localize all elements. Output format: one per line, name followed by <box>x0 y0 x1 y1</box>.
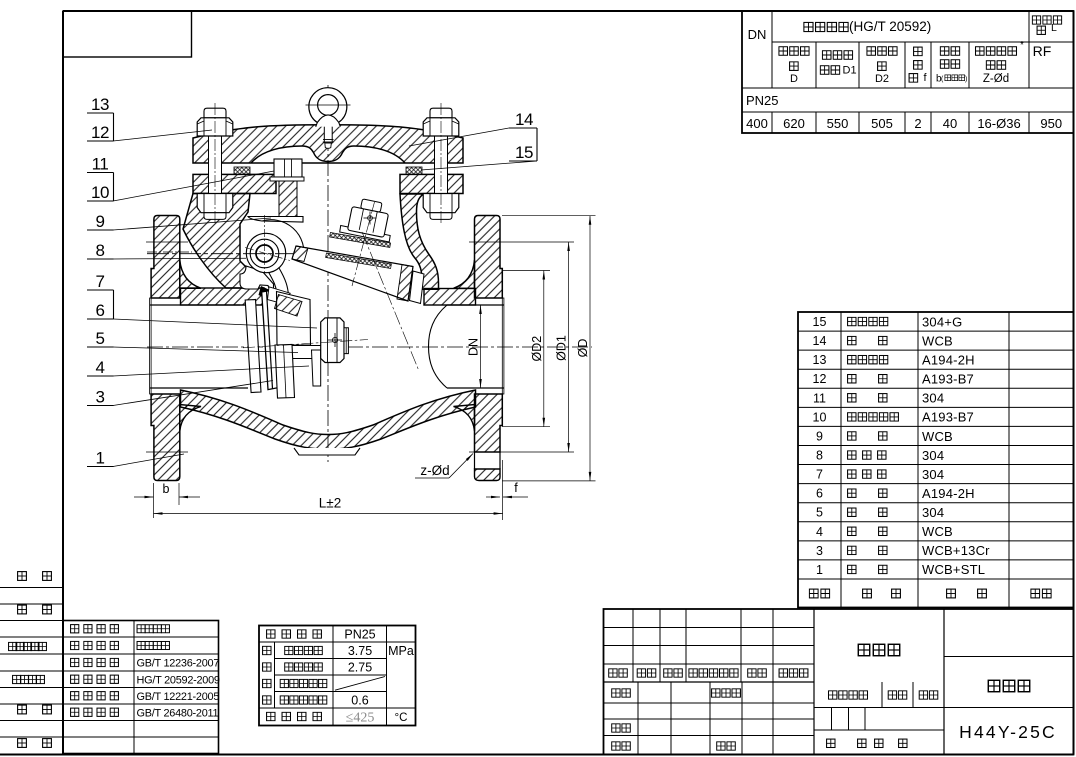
svg-text:A193-B7: A193-B7 <box>922 372 974 387</box>
svg-text:40: 40 <box>943 116 957 131</box>
svg-text:f: f <box>514 481 518 495</box>
svg-text:DN: DN <box>467 338 481 356</box>
svg-text:9: 9 <box>816 429 823 443</box>
svg-text:A193-B7: A193-B7 <box>922 410 974 425</box>
svg-text:3.75: 3.75 <box>348 644 372 658</box>
svg-text:7: 7 <box>96 272 105 291</box>
svg-text:304: 304 <box>922 467 944 482</box>
svg-text:HG/T 20592-2009: HG/T 20592-2009 <box>137 674 220 686</box>
svg-text:304: 304 <box>922 391 944 406</box>
svg-text:L: L <box>1051 22 1057 34</box>
svg-text:304: 304 <box>922 505 944 520</box>
svg-text:D2: D2 <box>875 73 889 85</box>
svg-text:11: 11 <box>92 154 109 173</box>
svg-text:): ) <box>965 76 967 83</box>
svg-text:14: 14 <box>813 334 827 348</box>
svg-text:304+G: 304+G <box>922 314 962 329</box>
svg-text:(HG/T 20592): (HG/T 20592) <box>849 19 931 34</box>
svg-text:1: 1 <box>816 563 823 577</box>
svg-text:H44Y-25C: H44Y-25C <box>959 722 1057 742</box>
svg-text:3: 3 <box>96 387 105 406</box>
svg-text:400: 400 <box>746 116 768 131</box>
svg-text:D: D <box>790 73 798 85</box>
svg-text:PN25: PN25 <box>746 93 779 108</box>
svg-text:GB/T 12221-2005: GB/T 12221-2005 <box>137 691 220 703</box>
svg-text:12: 12 <box>813 372 827 386</box>
svg-text:A194-2H: A194-2H <box>922 352 975 367</box>
svg-text:10: 10 <box>91 183 109 202</box>
svg-text:6: 6 <box>96 301 105 320</box>
svg-text:14: 14 <box>515 110 533 129</box>
svg-text:WCB: WCB <box>922 333 953 348</box>
svg-text:304: 304 <box>922 448 944 463</box>
svg-text:2.75: 2.75 <box>348 661 372 675</box>
svg-text:16-Ø36: 16-Ø36 <box>977 116 1020 131</box>
svg-text:5: 5 <box>816 506 823 520</box>
svg-text:950: 950 <box>1040 116 1062 131</box>
svg-text:12: 12 <box>91 123 109 142</box>
svg-text:WCB: WCB <box>922 429 953 444</box>
svg-text:620: 620 <box>783 116 805 131</box>
svg-text:1: 1 <box>96 448 105 467</box>
svg-text:L±2: L±2 <box>319 496 341 511</box>
svg-text:3: 3 <box>816 544 823 558</box>
svg-text:5: 5 <box>96 329 105 348</box>
svg-text:6: 6 <box>816 487 823 501</box>
svg-text:8: 8 <box>816 449 823 463</box>
svg-text:°C: °C <box>395 712 408 724</box>
svg-text:0.6: 0.6 <box>351 694 368 708</box>
svg-text:8: 8 <box>96 241 105 260</box>
svg-text:DN: DN <box>748 27 767 42</box>
svg-text:7: 7 <box>816 468 823 482</box>
svg-text:4: 4 <box>96 358 105 377</box>
svg-text:505: 505 <box>871 116 893 131</box>
svg-text:WCB+STL: WCB+STL <box>922 562 985 577</box>
svg-text:MPa: MPa <box>388 644 414 658</box>
svg-text:13: 13 <box>91 95 109 114</box>
svg-text:z-Ød: z-Ød <box>420 463 449 478</box>
svg-text:Z-Ød: Z-Ød <box>983 73 1009 85</box>
svg-text:GB/T 26480-2011: GB/T 26480-2011 <box>137 707 219 719</box>
svg-text:2: 2 <box>914 116 921 131</box>
svg-text:15: 15 <box>813 315 827 329</box>
svg-text:b: b <box>163 482 170 496</box>
svg-text:D1: D1 <box>843 65 857 77</box>
svg-text:13: 13 <box>813 353 827 367</box>
svg-text:*: * <box>1020 40 1024 51</box>
svg-text:11: 11 <box>813 391 826 405</box>
svg-text:ØD1: ØD1 <box>555 335 569 361</box>
svg-text:9: 9 <box>96 212 105 231</box>
svg-text:550: 550 <box>827 116 849 131</box>
svg-text:ØD: ØD <box>576 339 590 358</box>
svg-text:10: 10 <box>813 410 827 424</box>
svg-text:WCB: WCB <box>922 524 953 539</box>
svg-text:ØD2: ØD2 <box>530 336 544 362</box>
svg-text:4: 4 <box>816 525 823 539</box>
svg-text:RF: RF <box>1033 43 1052 59</box>
svg-text:GB/T 12236-2007: GB/T 12236-2007 <box>137 658 220 670</box>
svg-text:A194-2H: A194-2H <box>922 486 975 501</box>
svg-text:15: 15 <box>515 143 533 162</box>
svg-text:WCB+13Cr: WCB+13Cr <box>922 543 990 558</box>
svg-text:≤425: ≤425 <box>346 711 375 726</box>
svg-text:PN25: PN25 <box>344 628 375 642</box>
